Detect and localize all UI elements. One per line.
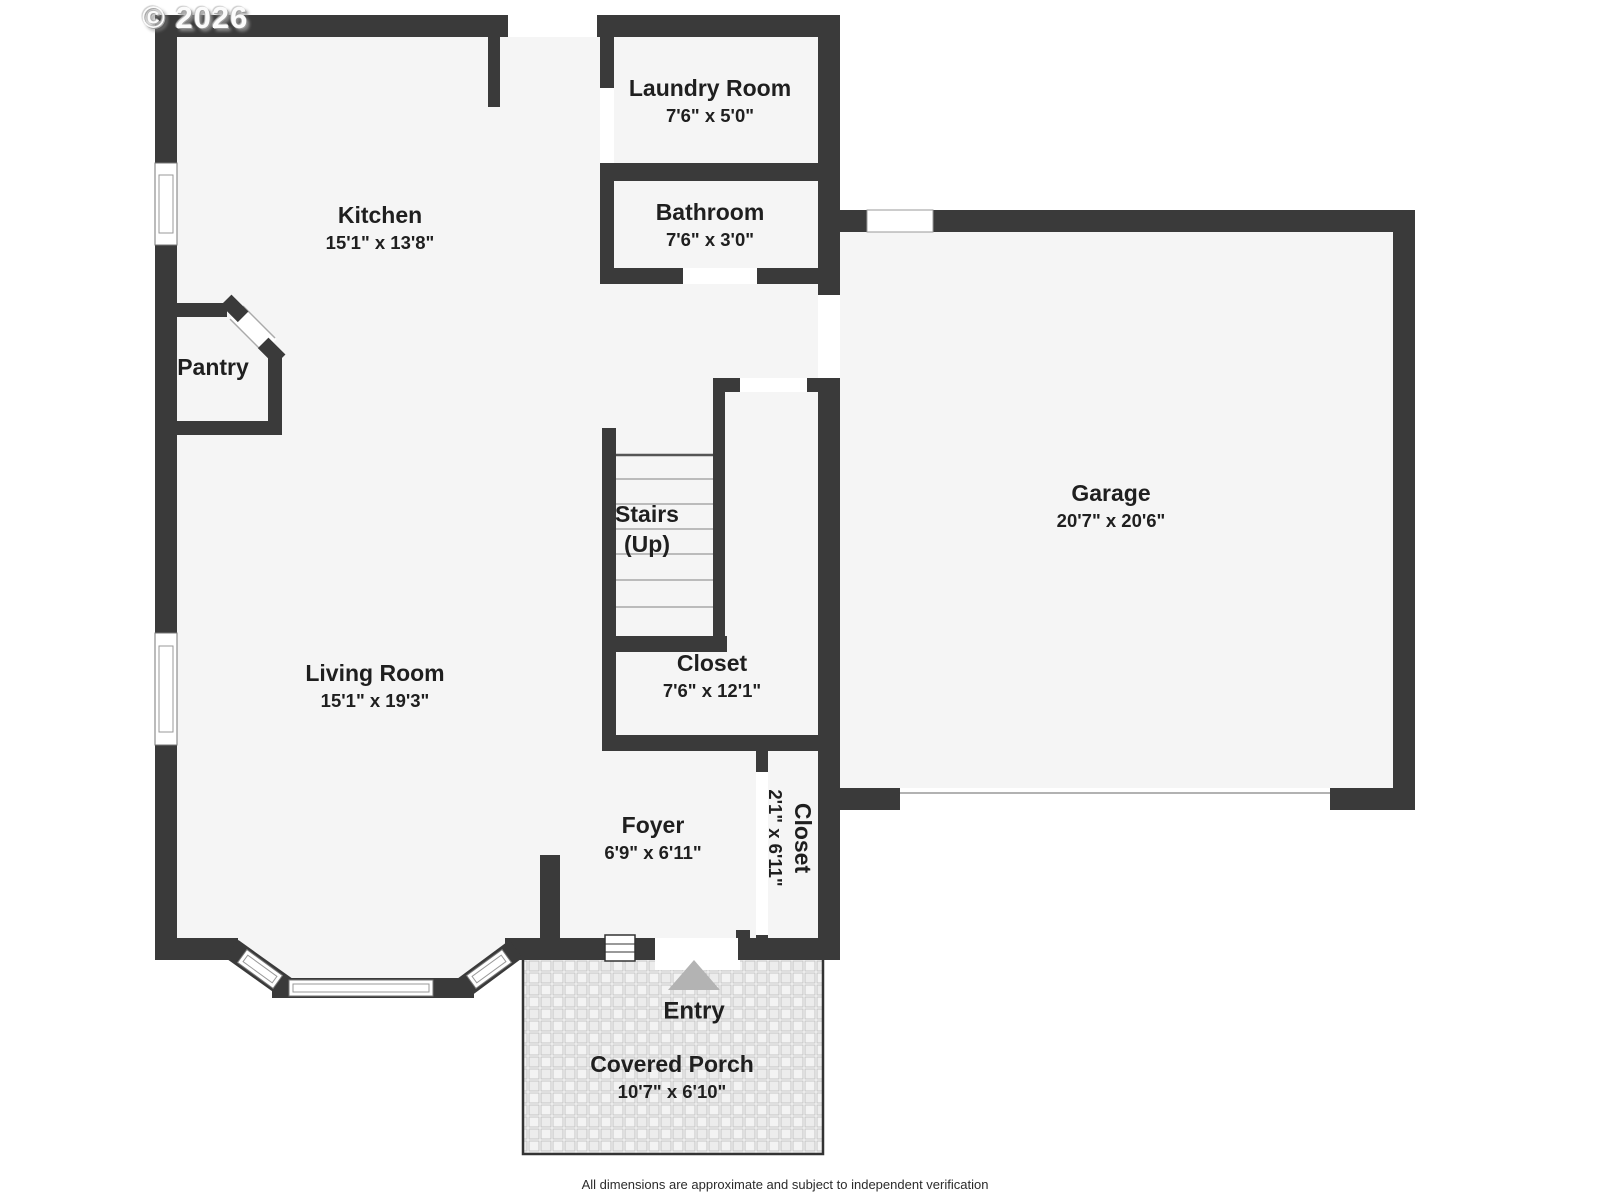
room-name: Stairs xyxy=(615,500,679,530)
label-closet: Closet 7'6" x 12'1" xyxy=(663,649,761,703)
room-name: Bathroom xyxy=(656,198,765,228)
room-name: Closet xyxy=(787,789,817,886)
disclaimer-text: All dimensions are approximate and subje… xyxy=(582,1177,989,1192)
label-laundry-room: Laundry Room 7'6" x 5'0" xyxy=(629,74,791,128)
room-name: Closet xyxy=(663,649,761,679)
label-bathroom: Bathroom 7'6" x 3'0" xyxy=(656,198,765,252)
copyright-watermark: © 2026 xyxy=(142,0,248,36)
room-name: Entry xyxy=(663,995,724,1026)
room-dims: 20'7" x 20'6" xyxy=(1057,509,1166,533)
room-dims: 7'6" x 5'0" xyxy=(629,104,791,128)
window-icon xyxy=(289,980,433,996)
room-dims: 15'1" x 13'8" xyxy=(326,231,435,255)
label-entry-closet: Closet 2'1" x 6'11" xyxy=(763,789,817,886)
window-icon xyxy=(867,210,933,232)
room-name: Living Room xyxy=(305,659,444,689)
room-direction: (Up) xyxy=(615,530,679,560)
room-dims: 6'9" x 6'11" xyxy=(604,841,701,865)
label-stairs: Stairs (Up) xyxy=(615,500,679,560)
room-dims: 7'6" x 12'1" xyxy=(663,679,761,703)
label-entry: Entry xyxy=(663,995,724,1026)
label-living-room: Living Room 15'1" x 19'3" xyxy=(305,659,444,713)
floor-plan: Laundry Room 7'6" x 5'0" Bathroom 7'6" x… xyxy=(0,0,1600,1200)
room-dims: 2'1" x 6'11" xyxy=(763,789,787,886)
room-name: Kitchen xyxy=(326,201,435,231)
window-icon xyxy=(155,633,177,745)
window-icon xyxy=(155,163,177,245)
label-covered-porch: Covered Porch 10'7" x 6'10" xyxy=(590,1050,754,1104)
label-foyer: Foyer 6'9" x 6'11" xyxy=(604,811,701,865)
room-name: Laundry Room xyxy=(629,74,791,104)
label-pantry: Pantry xyxy=(177,353,249,383)
room-name: Foyer xyxy=(604,811,701,841)
room-name: Garage xyxy=(1057,479,1166,509)
room-dims: 15'1" x 19'3" xyxy=(305,689,444,713)
window-icon xyxy=(605,935,635,961)
room-name: Covered Porch xyxy=(590,1050,754,1080)
label-kitchen: Kitchen 15'1" x 13'8" xyxy=(326,201,435,255)
room-dims: 7'6" x 3'0" xyxy=(656,228,765,252)
floor-plan-drawing xyxy=(0,0,1600,1200)
label-garage: Garage 20'7" x 20'6" xyxy=(1057,479,1166,533)
room-name: Pantry xyxy=(177,353,249,383)
room-dims: 10'7" x 6'10" xyxy=(590,1080,754,1104)
